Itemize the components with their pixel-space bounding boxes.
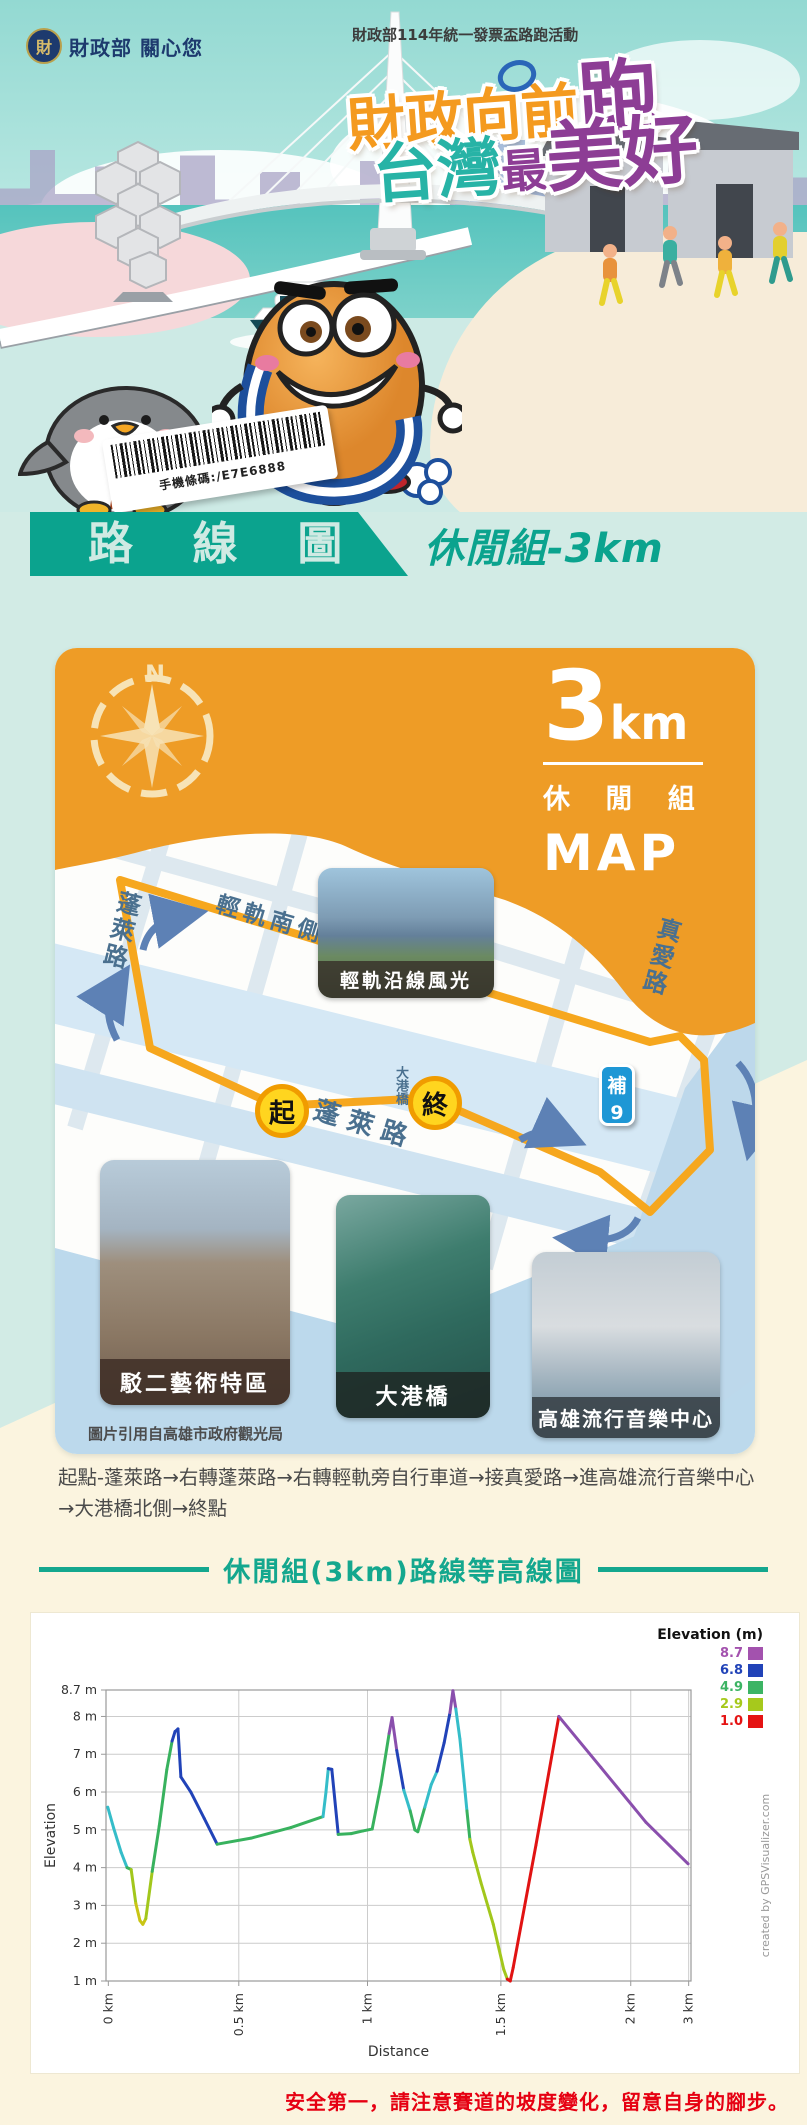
title-rule-left xyxy=(39,1567,209,1572)
divider xyxy=(543,762,703,765)
map-word: MAP xyxy=(543,824,708,882)
compass-north-label: N xyxy=(145,660,165,688)
svg-text:3 km: 3 km xyxy=(681,1993,696,2024)
legend-swatch-icon xyxy=(748,1647,763,1660)
svg-text:0.5 km: 0.5 km xyxy=(231,1993,246,2036)
svg-text:1 km: 1 km xyxy=(359,1993,374,2024)
distance-number: 3 xyxy=(543,650,610,762)
svg-text:Elevation: Elevation xyxy=(43,1803,59,1868)
svg-text:4 m: 4 m xyxy=(73,1860,97,1875)
aid-station-marker: 補 9 xyxy=(599,1064,635,1126)
hero-illustration: 手機條碼:/E7E6888 財 財政部 關心您 財政部114年統一發票盃路跑活動… xyxy=(0,0,807,512)
photo-lightrail-view: 輕軌沿線風光 xyxy=(318,868,494,998)
svg-text:2 m: 2 m xyxy=(73,1935,97,1950)
safety-note: 安全第一，請注意賽道的坡度變化，留意自身的腳步。 xyxy=(285,2086,789,2115)
title-part: 最 xyxy=(499,142,549,199)
svg-text:2 km: 2 km xyxy=(623,1993,638,2024)
svg-text:3 m: 3 m xyxy=(73,1897,97,1912)
photo-pier2-art-center: 駁二藝術特區 xyxy=(100,1160,290,1405)
legend-row: 1.0 xyxy=(657,1713,763,1730)
distance-block: 3km 休 閒 組 MAP xyxy=(543,658,708,882)
mof-logo-text: 財政部 關心您 xyxy=(69,32,203,61)
legend-value: 1.0 xyxy=(720,1714,743,1729)
title-rule-right xyxy=(598,1567,768,1572)
photo-credit: 圖片引用自高雄市政府觀光局 xyxy=(88,1423,283,1444)
svg-text:5 m: 5 m xyxy=(73,1822,97,1837)
hexagon-tower-graphic xyxy=(78,132,208,302)
legend-swatch-icon xyxy=(748,1698,763,1711)
photo-pop-music-center: 高雄流行音樂中心 xyxy=(532,1252,720,1438)
photo-label: 輕軌沿線風光 xyxy=(318,961,494,998)
title-part: 美好 xyxy=(543,104,701,203)
svg-text:8.7 m: 8.7 m xyxy=(61,1682,97,1697)
runners-graphic xyxy=(585,215,805,335)
section-banner: 路 線 圖 xyxy=(30,512,408,576)
route-map-card: 3km 休 閒 組 MAP N 輕軌南側自行車道 蓬萊路 真愛路 蓬 萊 路 大… xyxy=(55,648,755,1454)
photo-dagang-bridge: 大港橋 xyxy=(336,1195,490,1418)
elevation-chart-card: 8.7 m8 m7 m6 m5 m4 m3 m2 m1 m0 km0.5 km1… xyxy=(30,1612,800,2074)
photo-label: 駁二藝術特區 xyxy=(100,1359,290,1405)
legend-row: 6.8 xyxy=(657,1662,763,1679)
e-invoice-swirl-icon xyxy=(496,58,538,94)
poster-page: 手機條碼:/E7E6888 財 財政部 關心您 財政部114年統一發票盃路跑活動… xyxy=(0,0,807,2125)
legend-row: 8.7 xyxy=(657,1645,763,1662)
distance-unit: km xyxy=(610,696,689,750)
aid-line2: 9 xyxy=(602,1100,632,1127)
legend-swatch-icon xyxy=(748,1681,763,1694)
legend-swatch-icon xyxy=(748,1715,763,1728)
legend-rows: 8.76.84.92.91.0 xyxy=(657,1645,763,1730)
svg-text:Distance: Distance xyxy=(368,2044,429,2060)
section-banner-title: 路 線 圖 xyxy=(30,512,364,576)
section-banner-subtitle: 休閒組-3km xyxy=(424,516,664,574)
finish-marker: 終 xyxy=(408,1076,462,1130)
svg-text:6 m: 6 m xyxy=(73,1784,97,1799)
title-part: 台灣 xyxy=(371,131,504,214)
legend-value: 8.7 xyxy=(720,1646,743,1661)
svg-text:1.5 km: 1.5 km xyxy=(493,1993,508,2036)
road-label-dagang-bridge: 大港橋 xyxy=(391,1066,410,1105)
mof-logo: 財 財政部 關心您 xyxy=(26,28,203,64)
group-label: 休 閒 組 xyxy=(543,777,708,816)
svg-text:0 km: 0 km xyxy=(100,1993,115,2024)
legend-row: 2.9 xyxy=(657,1696,763,1713)
start-marker: 起 xyxy=(255,1084,309,1138)
svg-text:8 m: 8 m xyxy=(73,1708,97,1723)
svg-text:1 m: 1 m xyxy=(73,1973,97,1988)
legend-row: 4.9 xyxy=(657,1679,763,1696)
svg-text:created by GPSVisualizer.com: created by GPSVisualizer.com xyxy=(759,1794,772,1957)
chart-legend: Elevation (m) 8.76.84.92.91.0 xyxy=(657,1627,763,1730)
legend-title: Elevation (m) xyxy=(657,1627,763,1643)
mof-emblem-icon: 財 xyxy=(26,28,62,64)
legend-value: 2.9 xyxy=(720,1697,743,1712)
route-description: 起點-蓬萊路→右轉蓬萊路→右轉輕軌旁自行車道→接真愛路→進高雄流行音樂中心→大港… xyxy=(58,1462,758,1524)
legend-value: 4.9 xyxy=(720,1680,743,1695)
svg-text:7 m: 7 m xyxy=(73,1746,97,1761)
chart-section-title: 休閒組(3km)路線等高線圖 xyxy=(223,1550,584,1589)
legend-value: 6.8 xyxy=(720,1663,743,1678)
photo-label: 高雄流行音樂中心 xyxy=(532,1397,720,1438)
aid-line1: 補 xyxy=(602,1073,632,1100)
chart-section-title-row: 休閒組(3km)路線等高線圖 xyxy=(0,1550,807,1589)
legend-swatch-icon xyxy=(748,1664,763,1677)
event-title-line2: 台灣最美好 xyxy=(369,87,702,219)
photo-label: 大港橋 xyxy=(336,1372,490,1418)
